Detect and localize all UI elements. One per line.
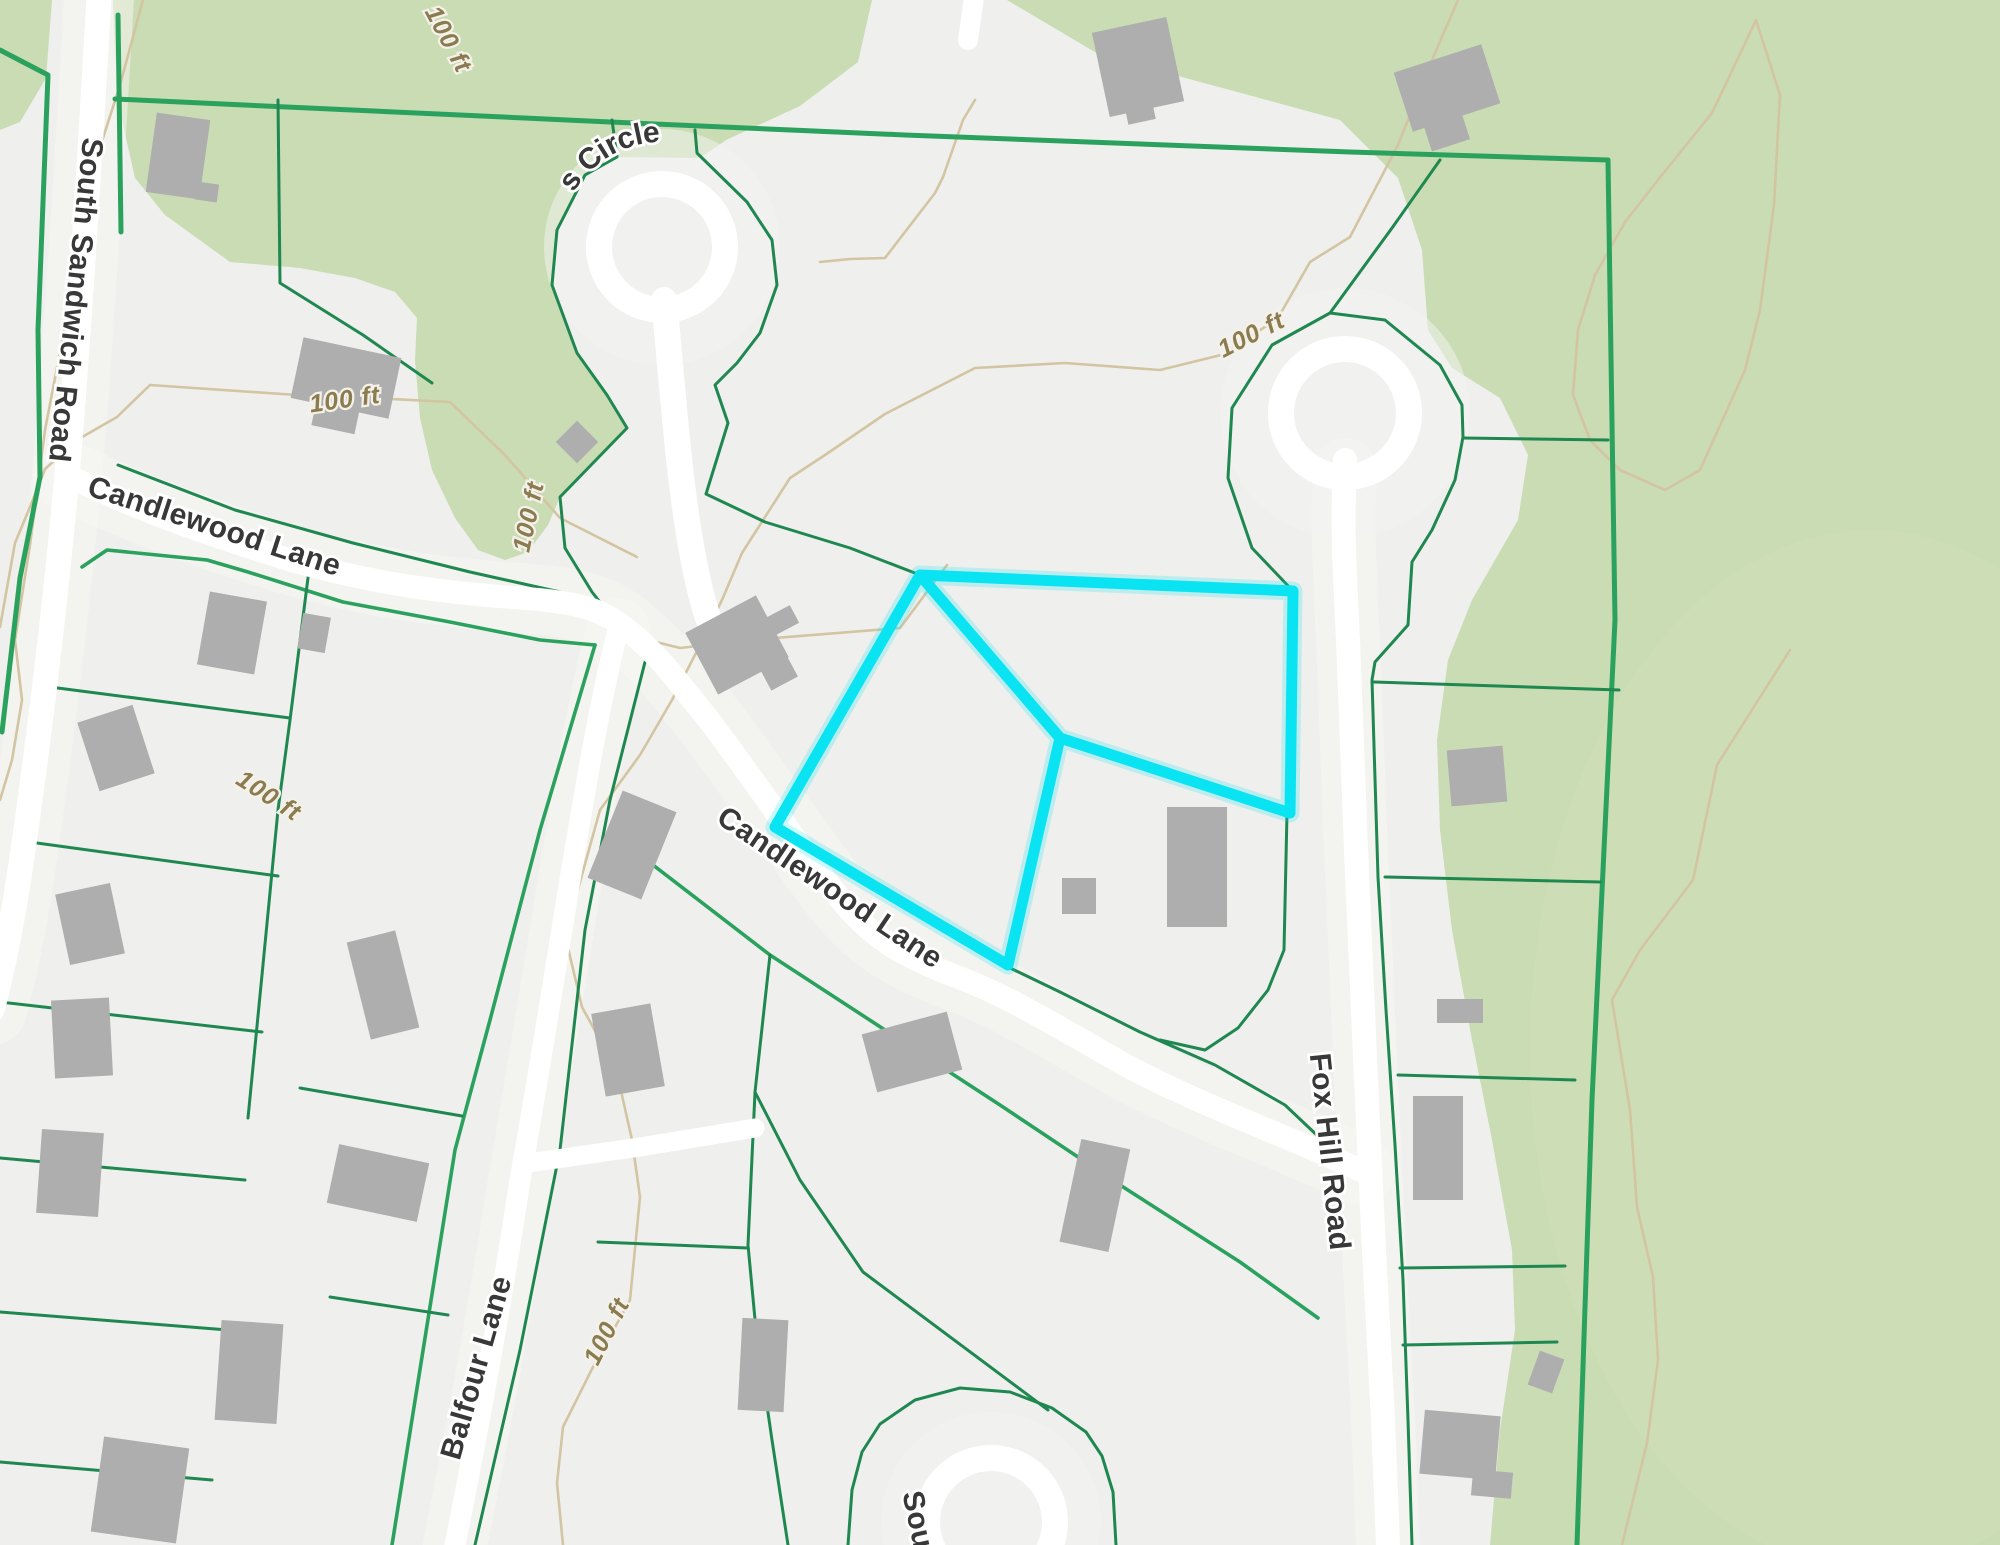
building [1419, 1410, 1500, 1480]
building [1413, 1096, 1463, 1200]
building [195, 182, 219, 203]
building [1437, 999, 1483, 1023]
building [738, 1318, 789, 1412]
building [1167, 807, 1227, 927]
building [51, 998, 113, 1079]
building [215, 1320, 284, 1424]
map-canvas[interactable]: South Sandwich Road Candlewood Lane Cypr… [0, 0, 2000, 1545]
building [1471, 1469, 1513, 1498]
building [1447, 746, 1508, 807]
parcel-map-viewport[interactable]: South Sandwich Road Candlewood Lane Cypr… [0, 0, 2000, 1545]
building [36, 1129, 104, 1217]
parcel-line [1463, 438, 1608, 440]
road-stub-top [968, 0, 975, 40]
parcel-line [1400, 1266, 1565, 1268]
subdivision-boundary-left [118, 15, 121, 232]
building [91, 1436, 190, 1543]
building [1062, 878, 1096, 914]
